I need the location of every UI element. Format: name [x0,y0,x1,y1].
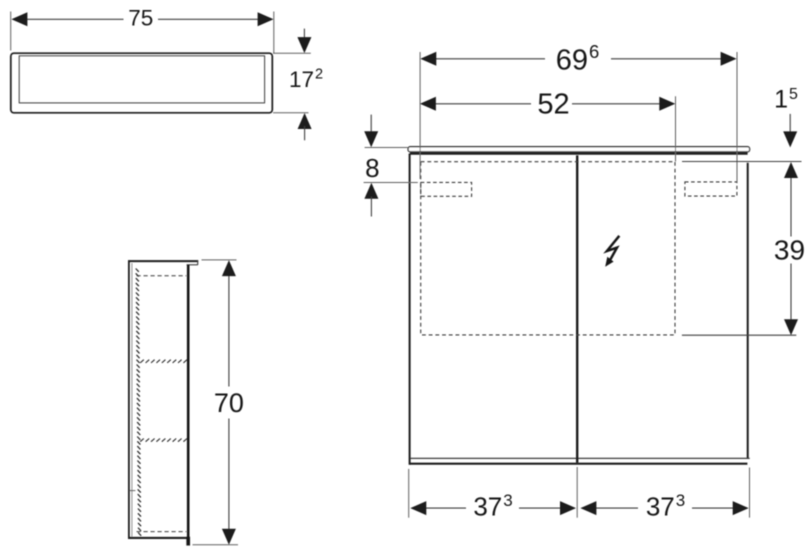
svg-text:3: 3 [676,491,685,510]
svg-text:69: 69 [556,45,588,77]
svg-text:39: 39 [774,235,805,266]
svg-text:8: 8 [365,153,379,183]
svg-text:1: 1 [774,86,788,114]
svg-text:75: 75 [128,6,153,31]
svg-text:52: 52 [537,88,569,120]
svg-text:37: 37 [473,491,502,521]
svg-text:70: 70 [214,388,244,418]
svg-text:17: 17 [289,67,314,92]
svg-text:2: 2 [315,67,323,83]
svg-text:5: 5 [789,86,798,103]
svg-text:3: 3 [503,491,512,510]
svg-text:6: 6 [589,41,599,62]
svg-text:37: 37 [646,491,675,521]
